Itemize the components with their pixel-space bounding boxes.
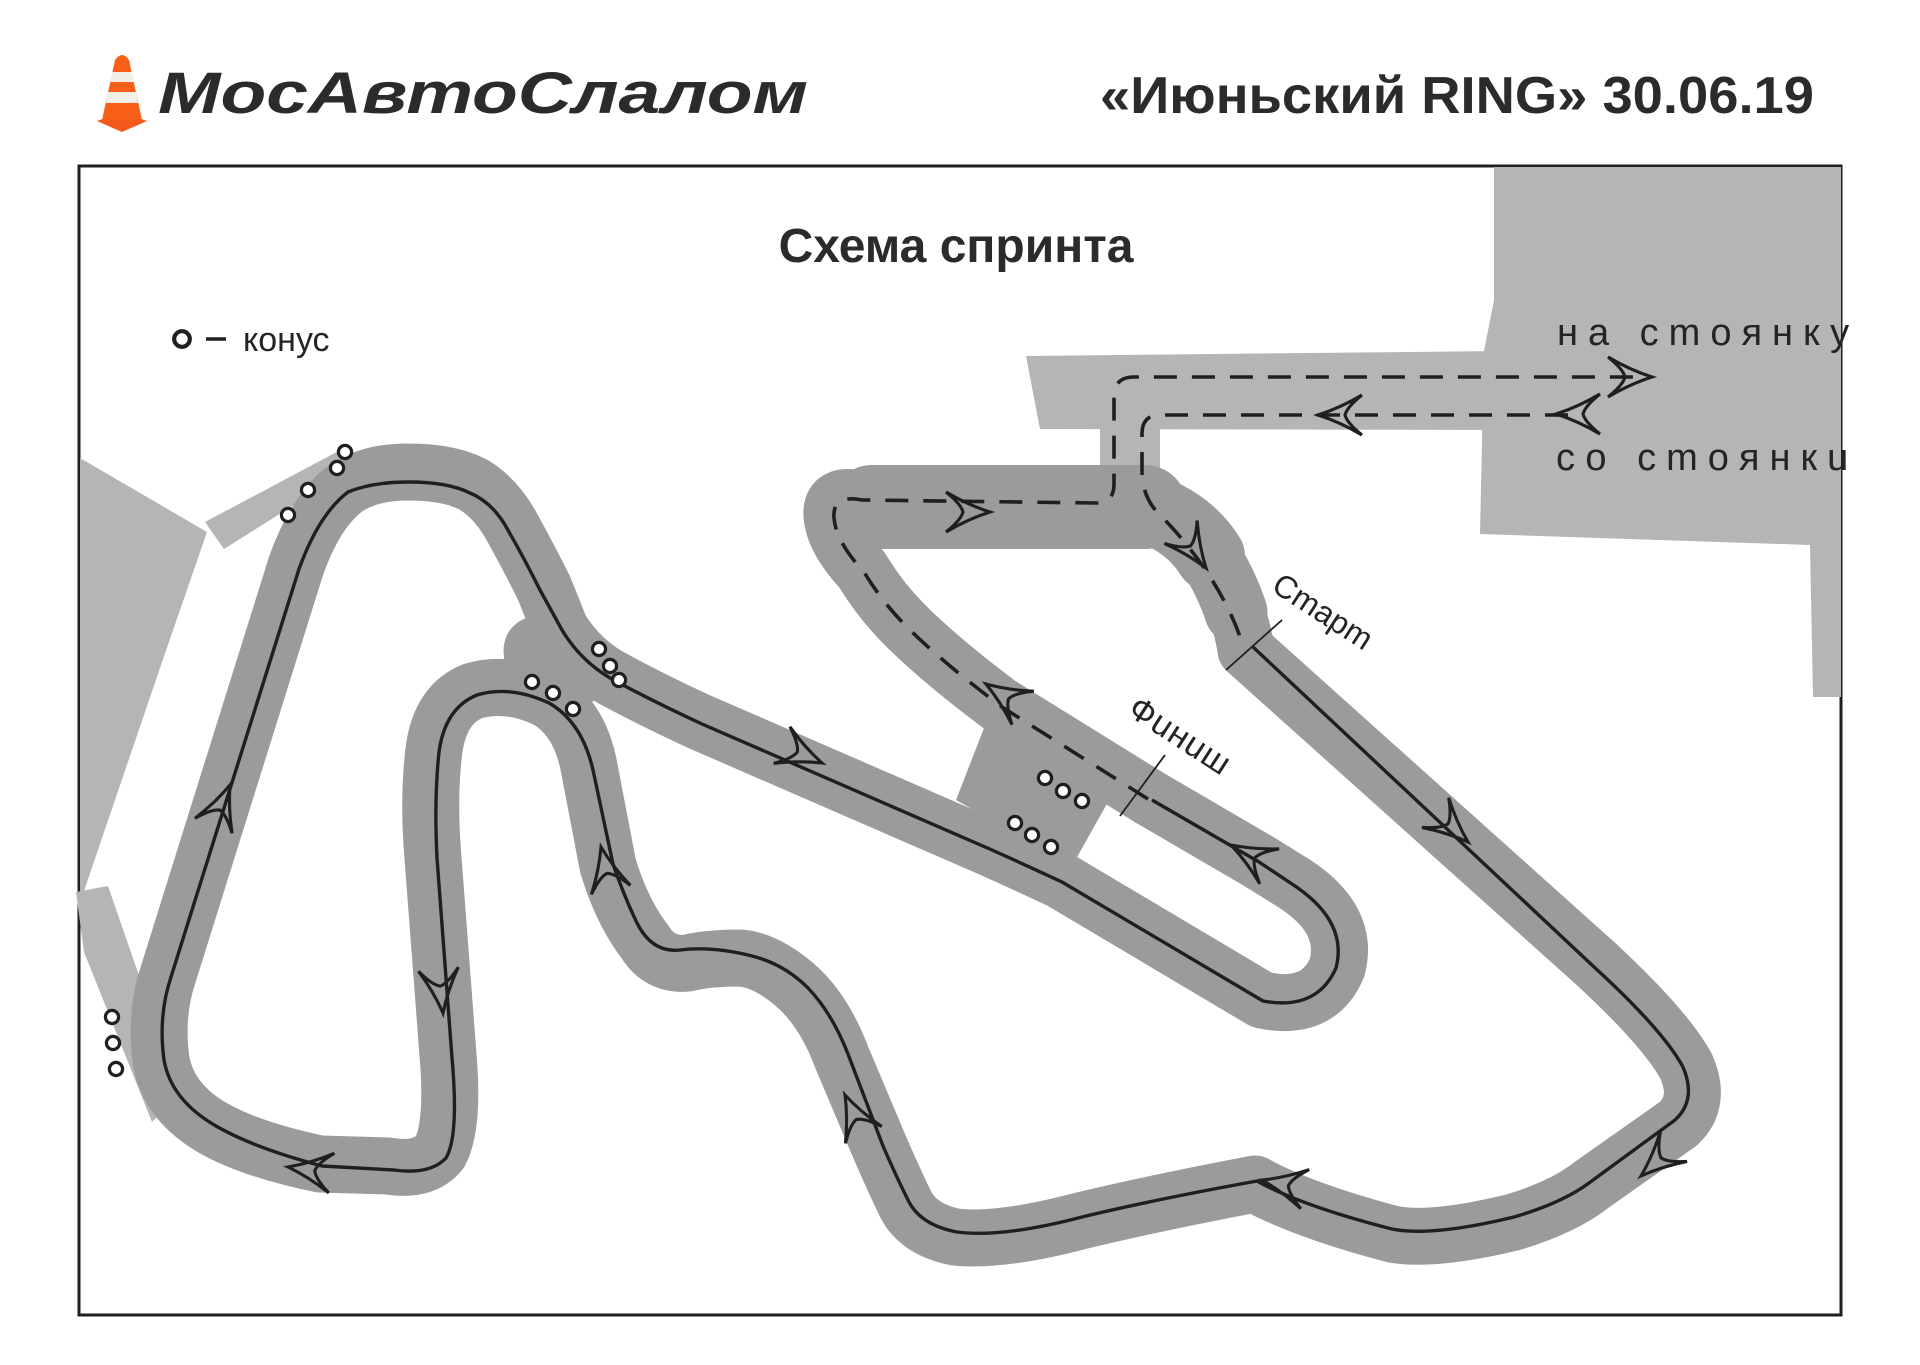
svg-text:на сmоянку: на сmоянку — [1557, 312, 1859, 354]
svg-text:МосАвтоСлалом: МосАвтоСлалом — [158, 61, 808, 126]
svg-text:конус: конус — [243, 321, 330, 359]
svg-text:Схема спринта: Схема спринта — [779, 220, 1134, 273]
svg-text:«Июньский RING» 30.06.19: «Июньский RING» 30.06.19 — [1100, 67, 1814, 125]
svg-text:со сmоянкu: со сmоянкu — [1556, 437, 1858, 479]
